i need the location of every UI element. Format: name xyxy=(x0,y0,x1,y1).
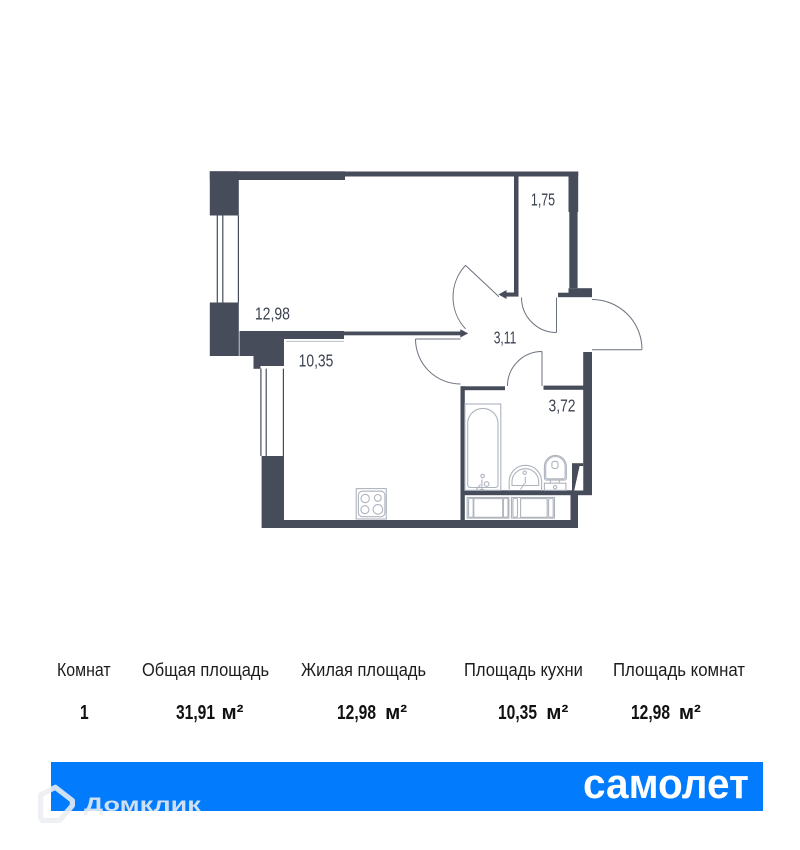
svg-text:3,11: 3,11 xyxy=(494,328,517,348)
svg-text:10,35: 10,35 xyxy=(299,351,334,371)
svg-text:1,75: 1,75 xyxy=(531,190,555,210)
svg-text:12,98: 12,98 xyxy=(255,304,290,324)
svg-text:3,72: 3,72 xyxy=(549,396,576,416)
